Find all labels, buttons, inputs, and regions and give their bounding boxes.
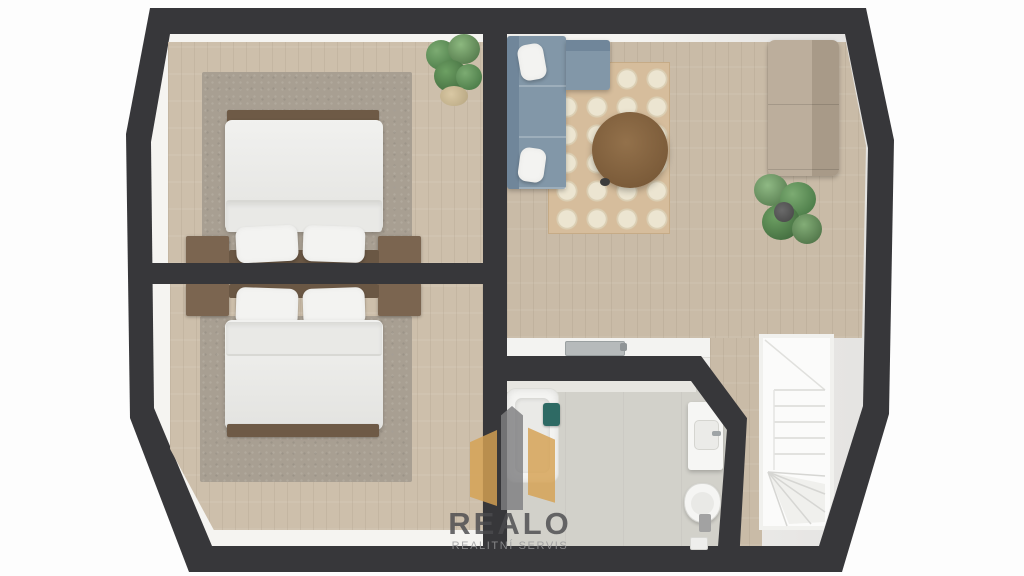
bedroom-top-nightstand-right [378, 236, 421, 266]
bedroom-bottom-bed-footboard [227, 424, 379, 437]
bedroom-top-nightstand-left [186, 236, 229, 266]
counter-faucet [620, 343, 627, 351]
sofa-beige [768, 40, 839, 176]
stairwell [759, 334, 834, 530]
winder-stairs [759, 334, 834, 530]
bathroom-bottle [699, 514, 711, 532]
bedroom-top-pillow-right [302, 225, 365, 263]
bedroom-bottom-nightstand-left [186, 283, 229, 316]
round-coffee-table [592, 112, 668, 188]
bedroom-bottom-bed-blanket-fold [226, 322, 382, 356]
wall-between-bedrooms [151, 263, 507, 284]
bathroom-teal-bin [543, 403, 560, 426]
wall-bedrooms-living-divider [483, 34, 507, 546]
counter-sink [565, 341, 625, 356]
bedroom-bottom-nightstand-right [378, 283, 421, 316]
bathroom-faucet [712, 431, 721, 436]
sofa-pillow-bottom [517, 146, 547, 183]
bedroom-top-pillow-left [235, 224, 299, 263]
bathroom-small-item [690, 537, 708, 550]
sofa-blue-chaise-section [566, 40, 610, 90]
floor-plan-canvas: REALO REALITNÍ SERVIS [0, 0, 1024, 576]
